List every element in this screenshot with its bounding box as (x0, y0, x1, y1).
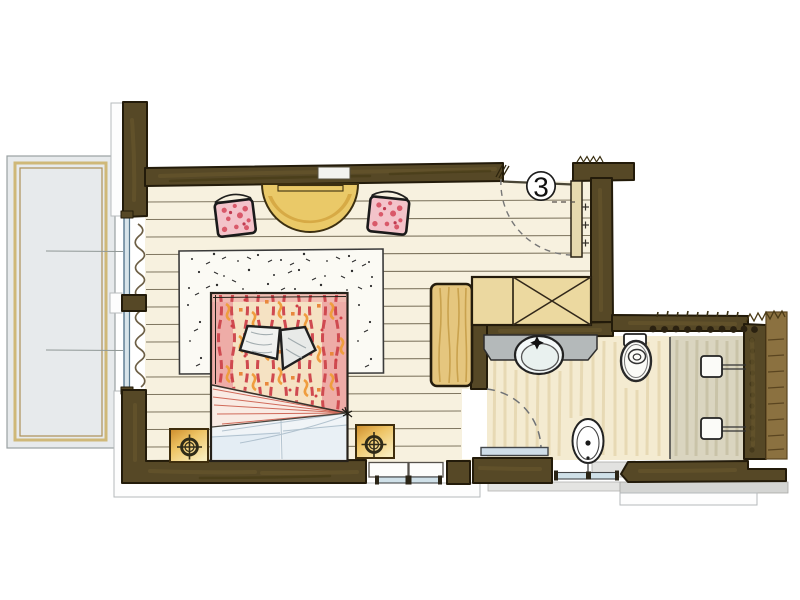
svg-text:3: 3 (533, 172, 549, 203)
